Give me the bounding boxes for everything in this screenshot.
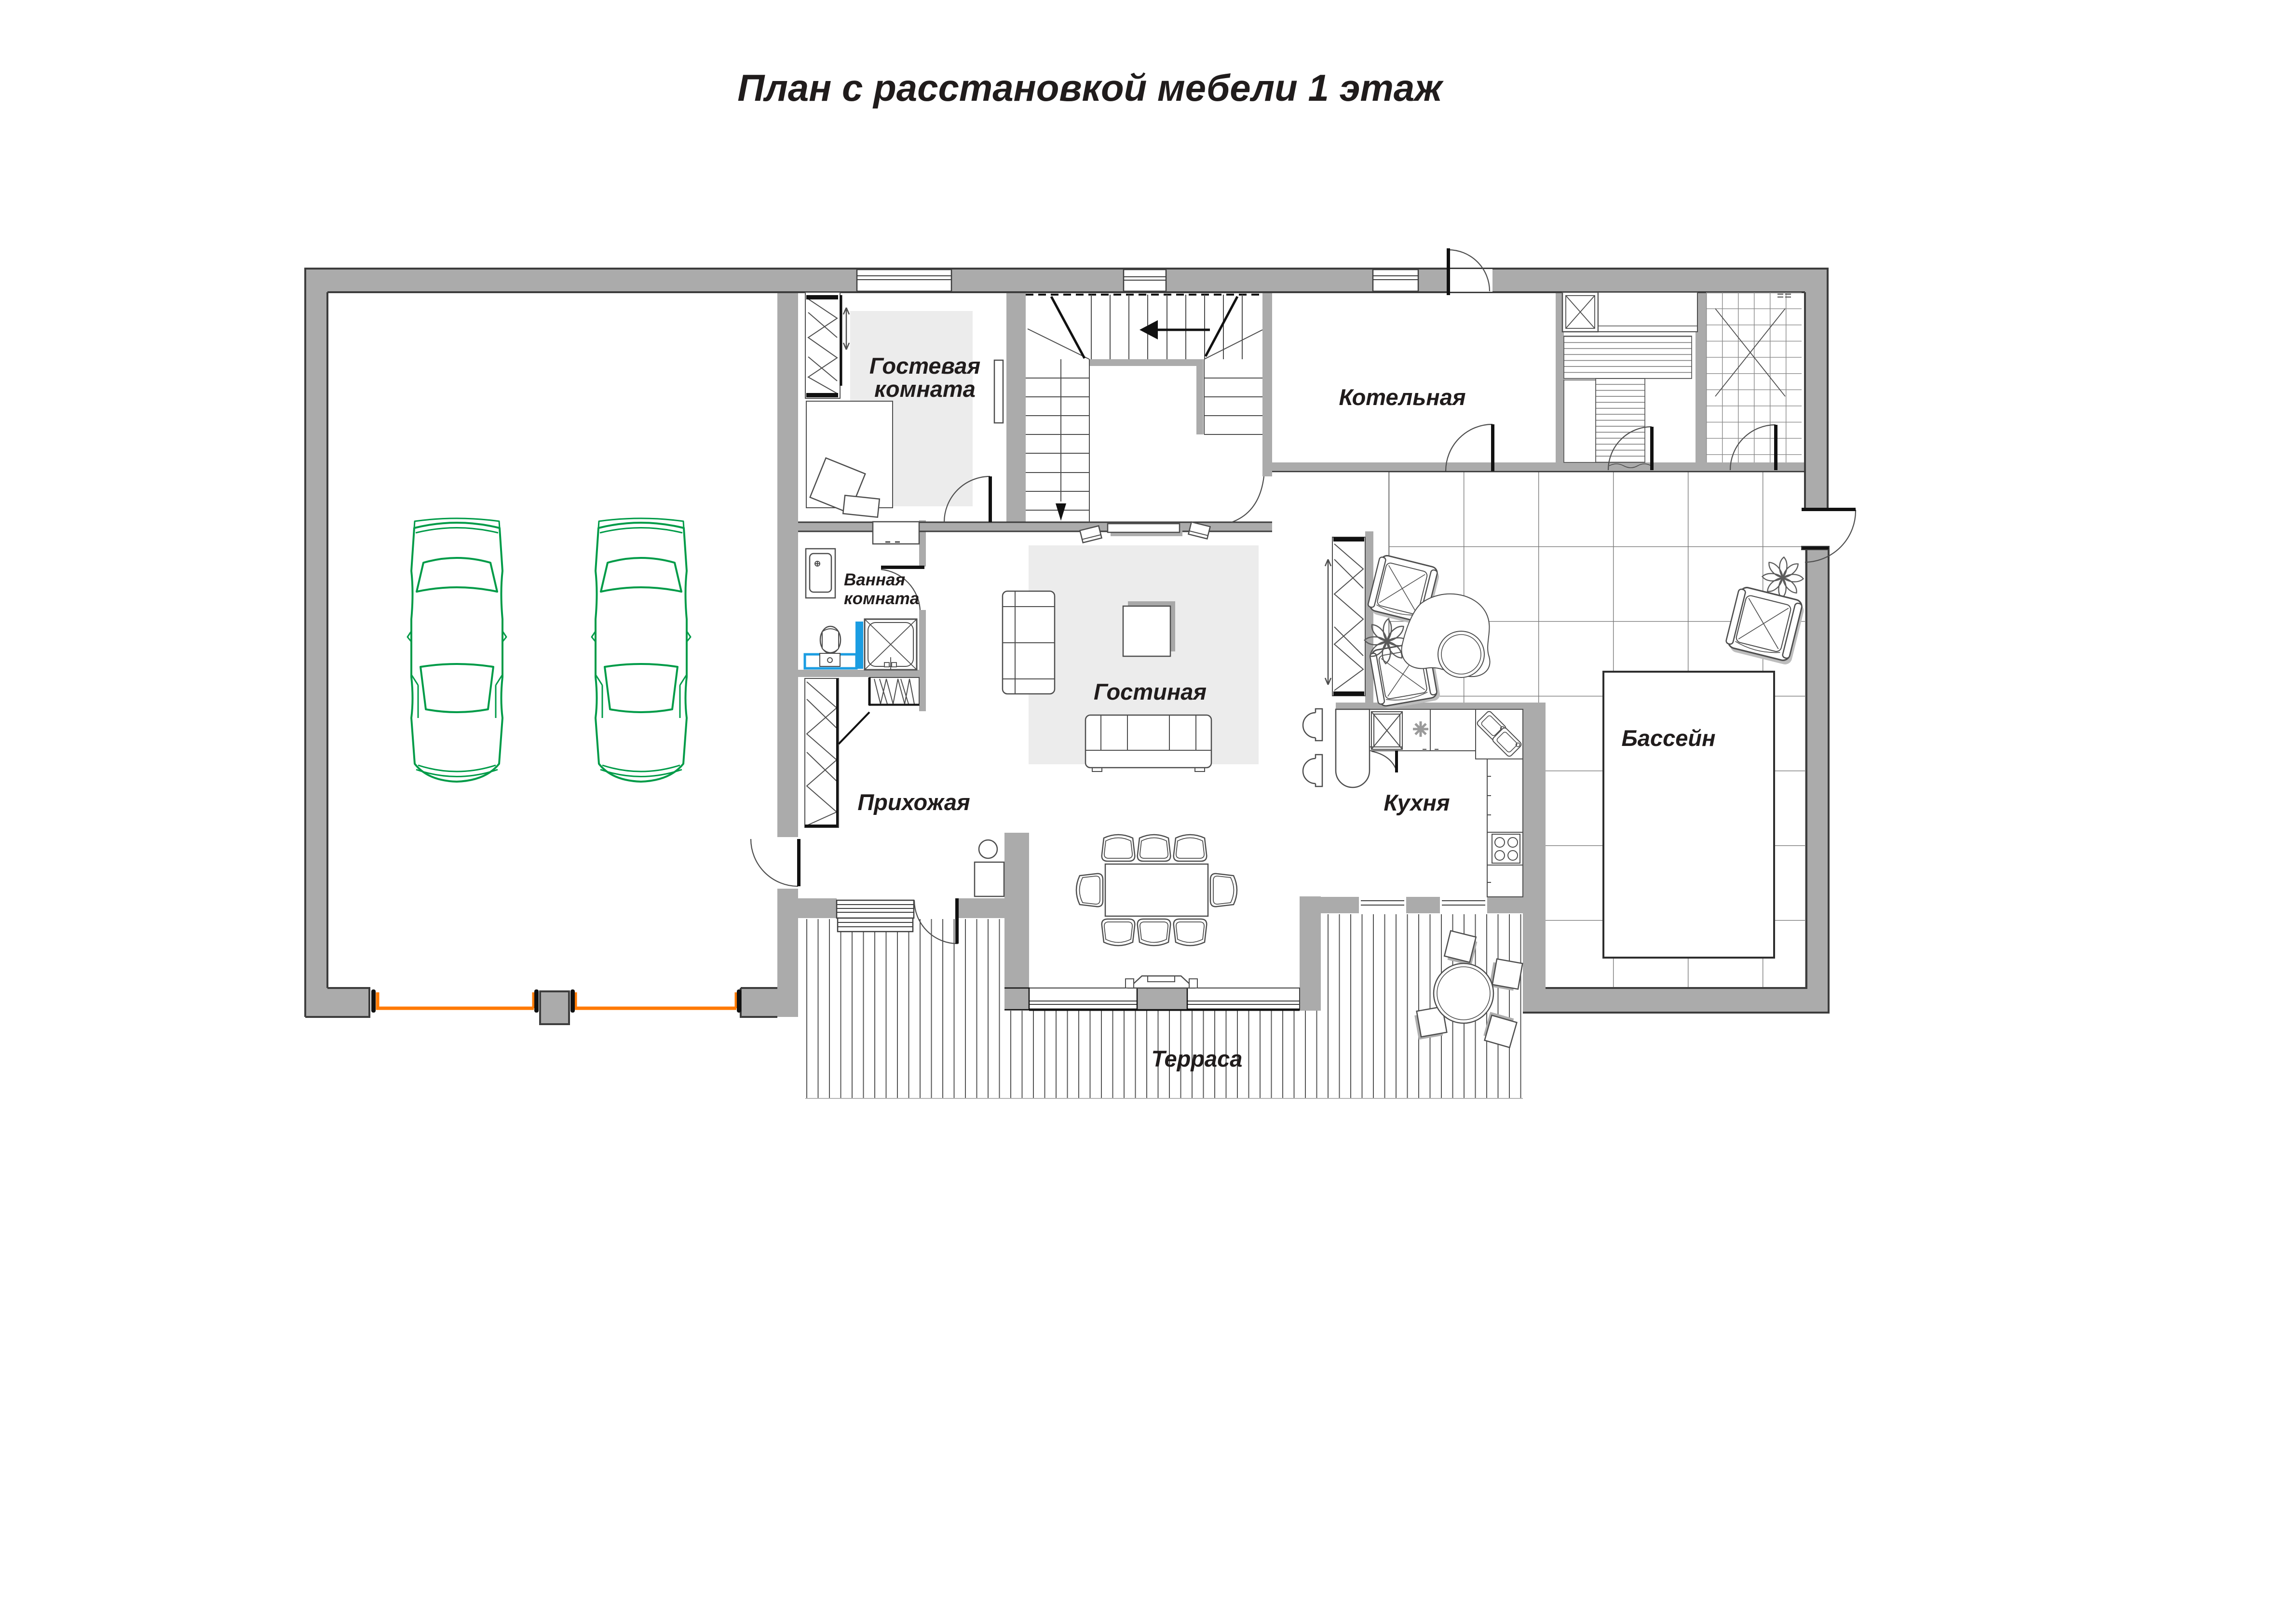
svg-text:Котельная: Котельная [1339,384,1465,410]
svg-text:Гостиная: Гостиная [1094,679,1207,704]
svg-text:Прихожая: Прихожая [857,789,970,815]
svg-text:Гостевая: Гостевая [869,353,980,379]
svg-text:Ванная: Ванная [844,570,905,589]
svg-text:комната: комната [844,589,919,608]
svg-text:Кухня: Кухня [1384,790,1450,815]
svg-text:Терраса: Терраса [1152,1046,1243,1071]
svg-text:План с расстановкой мебели 1 э: План с расстановкой мебели 1 этаж [737,67,1444,109]
svg-text:Бассейн: Бассейн [1622,725,1716,751]
svg-text:комната: комната [874,376,976,402]
